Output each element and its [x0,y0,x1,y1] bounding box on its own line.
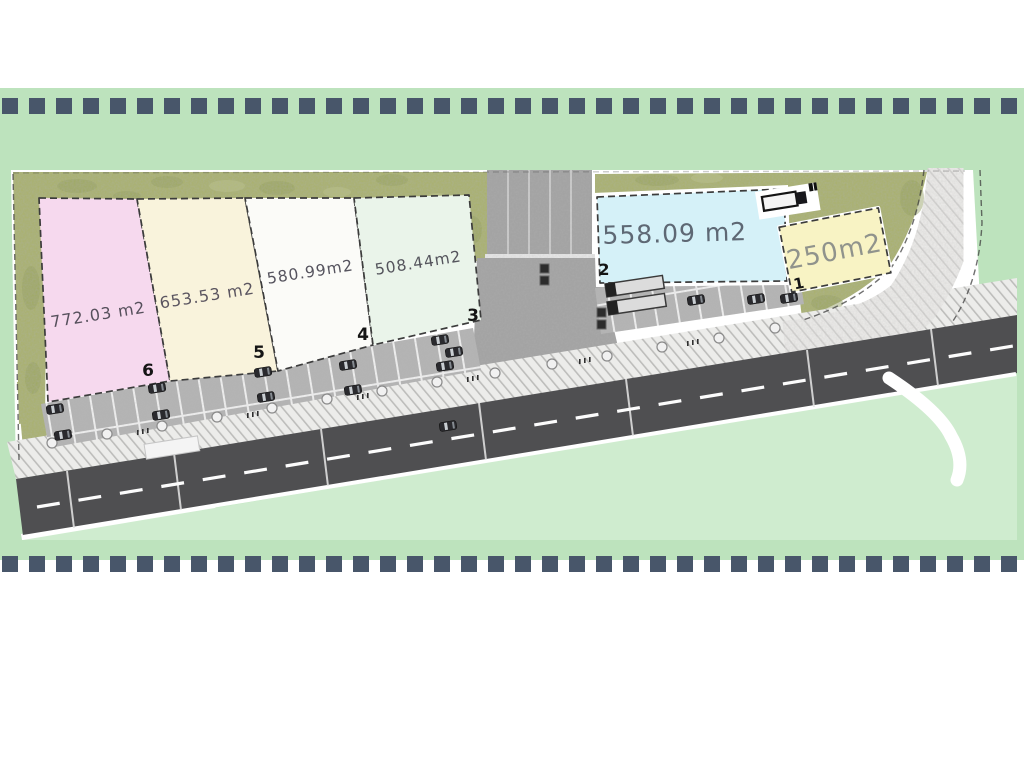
plot-3: 508.44m2 3 [354,195,481,345]
plot-number: 5 [253,343,265,363]
site-plan: 772.03 m2 6 653.53 m2 5 580.99m2 4 508.4… [7,168,1019,540]
plot-area-label: 558.09 m2 [602,217,747,250]
border-bottom-dashes [2,556,1024,572]
page: 772.03 m2 6 653.53 m2 5 580.99m2 4 508.4… [0,0,1024,768]
plot-number: 2 [598,260,609,279]
plot-number: 4 [357,325,369,345]
plot-number: 3 [467,306,479,326]
border-top-dashes [2,98,1024,114]
plot-number: 6 [142,361,154,381]
